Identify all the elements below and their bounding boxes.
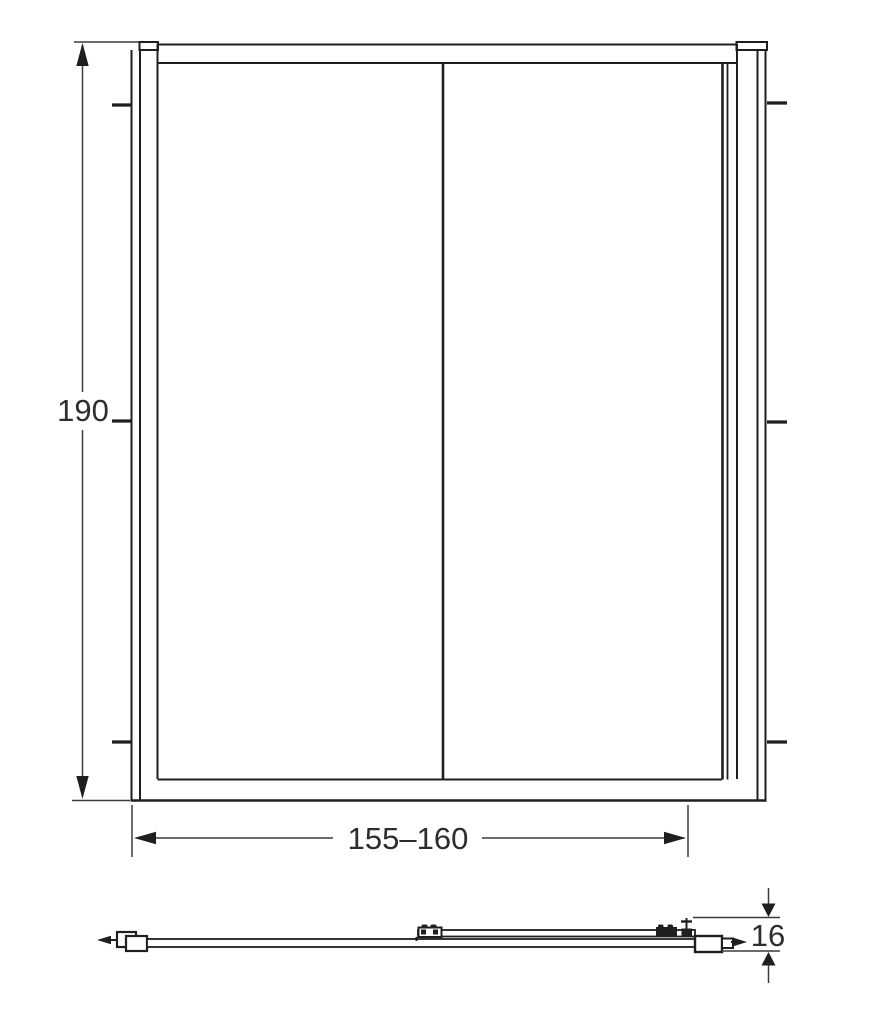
plan-end-profile-outer (695, 936, 722, 952)
wall-profile-right-cap (737, 42, 768, 50)
handle-base (682, 929, 693, 937)
wall-profile-right (737, 42, 768, 801)
arrow-left-icon (134, 832, 156, 844)
sliding-panel-edge (723, 63, 728, 780)
mounting-ticks (112, 103, 787, 742)
roller-clamp-left-pad (421, 930, 426, 935)
wall-profile-left (132, 42, 159, 801)
wall-profile-left-cap (140, 42, 159, 50)
arrow-left-icon (97, 936, 111, 944)
top-rail (158, 45, 738, 64)
wall-arrow-left (97, 936, 118, 944)
front-view (112, 42, 787, 801)
plan-end-profile-inner (722, 939, 733, 949)
arrow-up-icon (76, 43, 88, 66)
plan-view (97, 918, 747, 952)
arrow-down-icon (762, 904, 776, 918)
handle-knob (681, 918, 692, 937)
roller-clamp-right-body (656, 927, 677, 936)
width-dimension: 155–160 (132, 805, 688, 857)
plan-back-panel (147, 939, 700, 947)
plan-sliding-panel (418, 930, 695, 937)
thickness-dimension-label: 16 (751, 918, 785, 953)
roller-clamp-right (656, 925, 677, 937)
bottom-rail (131, 780, 767, 801)
arrow-down-icon (76, 776, 88, 799)
drawing-canvas: 190 155–160 (0, 0, 881, 1024)
roller-clamp-left-pad (433, 930, 438, 935)
width-dimension-label: 155–160 (348, 821, 469, 856)
height-dimension-label: 190 (57, 393, 109, 428)
arrow-up-icon (762, 952, 776, 966)
arrow-right-icon (664, 832, 686, 844)
wall-arrow-right (731, 938, 747, 947)
plan-wall-profile-left-inner (126, 936, 147, 951)
arrow-right-icon (733, 938, 747, 947)
